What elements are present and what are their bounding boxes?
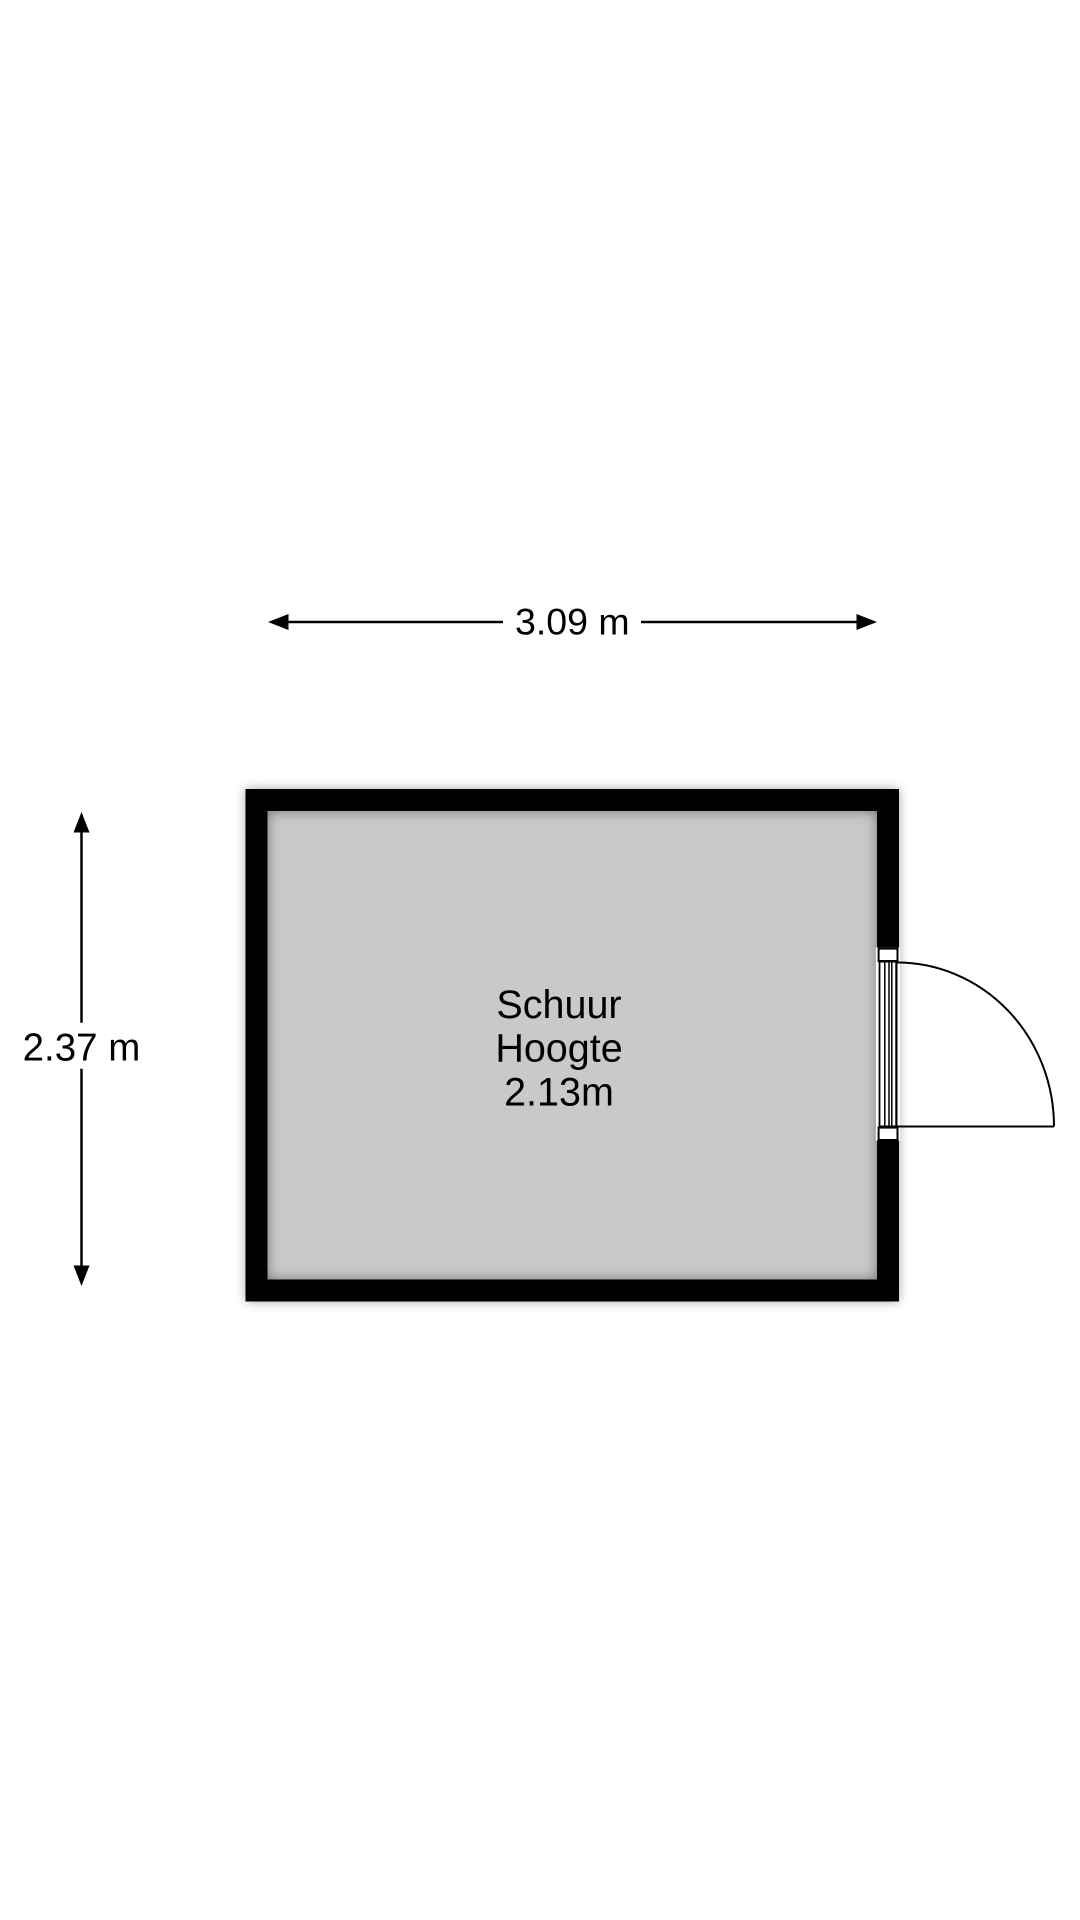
svg-text:3.09 m: 3.09 m xyxy=(515,601,630,643)
svg-text:Hoogte: Hoogte xyxy=(495,1027,622,1071)
svg-text:Schuur: Schuur xyxy=(496,983,621,1027)
svg-text:2.13m: 2.13m xyxy=(504,1070,614,1114)
svg-text:2.37 m: 2.37 m xyxy=(23,1027,141,1070)
